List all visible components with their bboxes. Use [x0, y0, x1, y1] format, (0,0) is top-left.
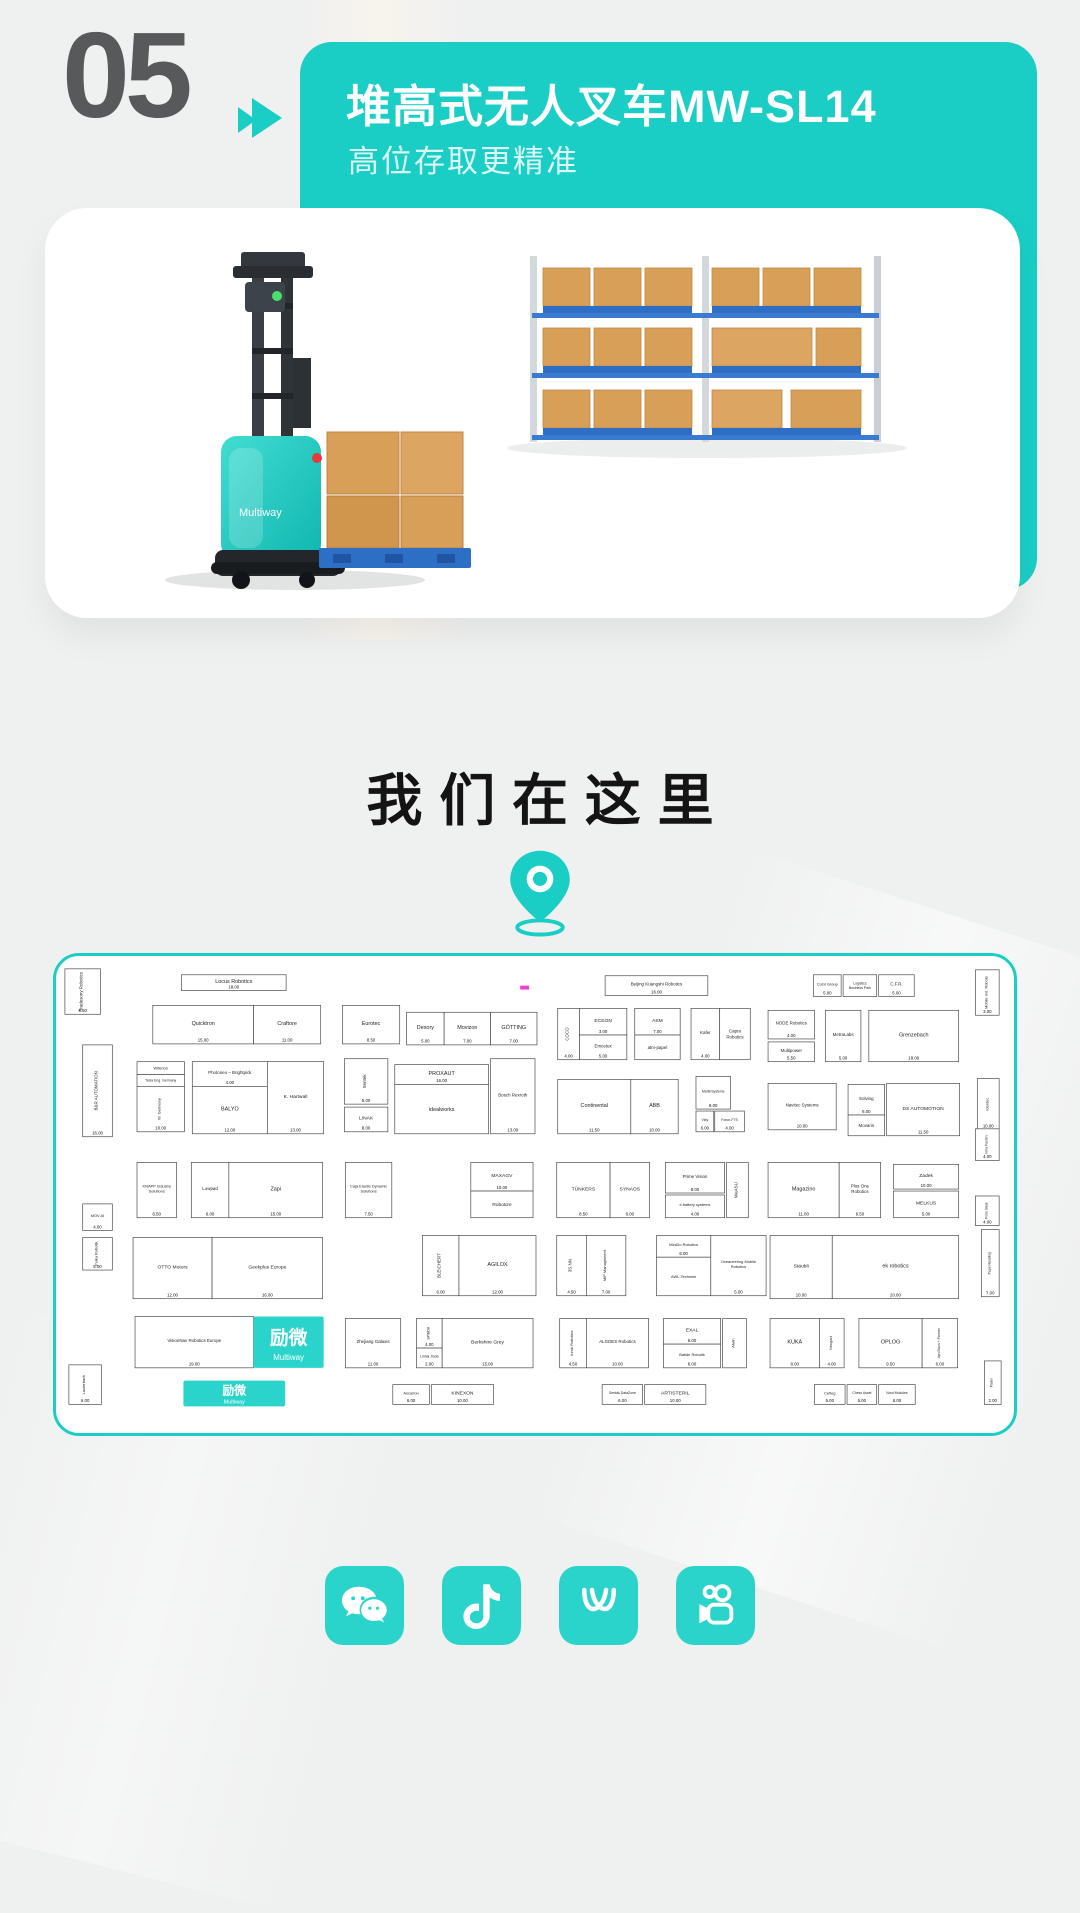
svg-text:Serdak DataZone: Serdak DataZone — [609, 1391, 636, 1395]
svg-text:KUKA: KUKA — [787, 1340, 802, 1346]
svg-text:AWL-Techniek: AWL-Techniek — [671, 1274, 696, 1279]
svg-text:Zhejiang Galaxis: Zhejiang Galaxis — [357, 1339, 391, 1344]
svg-text:11.50: 11.50 — [589, 1128, 600, 1133]
booth: Navitec Systems10.00 — [768, 1083, 836, 1129]
svg-text:Zapi: Zapi — [270, 1186, 281, 1192]
svg-text:Robotics: Robotics — [726, 1034, 744, 1039]
svg-text:Lowpad: Lowpad — [202, 1186, 218, 1191]
svg-text:7.00: 7.00 — [463, 1039, 472, 1044]
svg-text:Intra Fasten: Intra Fasten — [984, 1135, 988, 1153]
svg-text:Continental: Continental — [581, 1103, 608, 1109]
svg-text:5.00: 5.00 — [892, 990, 901, 995]
svg-text:MiniDo Robotics: MiniDo Robotics — [669, 1242, 698, 1247]
product-illustration: Multiway — [45, 208, 1020, 618]
svg-text:Solving: Solving — [859, 1096, 874, 1101]
svg-text:6.00: 6.00 — [688, 1362, 697, 1367]
svg-text:励微: 励微 — [270, 1326, 308, 1348]
booth: Nord Modules6.00 — [879, 1385, 916, 1405]
svg-text:MELKUS: MELKUS — [916, 1201, 937, 1207]
svg-text:5.00: 5.00 — [93, 1264, 102, 1269]
booth: atm-papel — [635, 1035, 680, 1060]
svg-text:K. Hartwall: K. Hartwall — [284, 1094, 308, 1100]
svg-text:18.00: 18.00 — [228, 984, 239, 989]
svg-text:Geekplus Europe: Geekplus Europe — [248, 1264, 286, 1270]
booth: Photoneo – Brightpick4.00 — [192, 1062, 267, 1087]
booth: MIP Management7.00 — [586, 1235, 626, 1295]
svg-text:VisionNav Robotics Europe: VisionNav Robotics Europe — [167, 1338, 221, 1343]
booth: ek robotics20.00 — [832, 1235, 958, 1298]
booth: CoGi Group5.00 — [813, 975, 841, 997]
svg-text:5.00: 5.00 — [362, 1098, 371, 1103]
svg-text:Grenzebach: Grenzebach — [899, 1032, 929, 1038]
booth: Intra Fasten4.00 — [975, 1129, 999, 1161]
booth: GÖTTING7.00 — [491, 1012, 537, 1045]
svg-text:4.00: 4.00 — [725, 1126, 734, 1131]
svg-text:8.00: 8.00 — [691, 1187, 700, 1192]
booth: DS AUTOMOTION11.50 — [887, 1083, 960, 1135]
svg-text:C.F.R.: C.F.R. — [890, 982, 902, 987]
svg-text:Solutions: Solutions — [360, 1189, 376, 1194]
svg-text:10.00: 10.00 — [649, 1128, 660, 1133]
booth: ECEON3.00 — [579, 1008, 626, 1035]
booth: Identec10.00 — [977, 1078, 999, 1129]
svg-text:Tradesony Robotics: Tradesony Robotics — [79, 971, 84, 1011]
svg-text:Logistics: Logistics — [853, 982, 867, 986]
svg-text:Ascarion: Ascarion — [403, 1390, 418, 1395]
booth: Grenzebach18.00 — [869, 1010, 959, 1061]
svg-text:Capra: Capra — [729, 1029, 742, 1034]
svg-text:10.00: 10.00 — [496, 1185, 507, 1190]
svg-text:Zadek: Zadek — [919, 1173, 933, 1179]
social-icons-row — [0, 1566, 1080, 1645]
svg-text:AGILOX: AGILOX — [487, 1262, 508, 1268]
svg-text:Identec: Identec — [984, 1098, 989, 1111]
booth: Geekplus Europe16.00 — [212, 1237, 323, 1298]
svg-text:Aiwin: Aiwin — [730, 1338, 735, 1347]
booth: Robotize — [471, 1191, 533, 1218]
booth: Wiferion — [137, 1062, 184, 1075]
booth: WeASU — [727, 1162, 749, 1217]
svg-text:6.00: 6.00 — [407, 1398, 416, 1403]
svg-text:8.00: 8.00 — [362, 1126, 371, 1131]
svg-text:Multipower: Multipower — [781, 1048, 803, 1053]
svg-text:MAXAGV: MAXAGV — [491, 1173, 513, 1179]
svg-text:2.00: 2.00 — [425, 1362, 434, 1367]
svg-text:4.50: 4.50 — [569, 1362, 578, 1367]
svg-text:Multiway: Multiway — [273, 1353, 304, 1362]
svg-text:Prime Vision: Prime Vision — [683, 1174, 708, 1179]
wechat-channels-icon[interactable] — [559, 1566, 638, 1645]
svg-text:Frote Ideal: Frote Ideal — [984, 1202, 988, 1219]
svg-text:COCO: COCO — [565, 1027, 570, 1041]
svg-text:ek robotics: ek robotics — [882, 1264, 909, 1270]
svg-text:idealworks: idealworks — [429, 1107, 455, 1113]
booth: Plus OneRobotics6.50 — [839, 1162, 880, 1217]
svg-text:4.00: 4.00 — [787, 1033, 796, 1038]
svg-text:Quicktron: Quicktron — [192, 1021, 215, 1027]
svg-text:NODE Robotics: NODE Robotics — [776, 1021, 808, 1026]
svg-text:10.00: 10.00 — [921, 1183, 932, 1188]
booth: Multipower5.50 — [768, 1042, 814, 1062]
booth: Magazino11.00 — [768, 1162, 839, 1217]
booth: C.F.R.5.00 — [879, 975, 915, 997]
svg-text:PROXAUT: PROXAUT — [429, 1071, 456, 1077]
booth: Dexory5.00 — [407, 1012, 445, 1045]
svg-text:Craftore: Craftore — [277, 1021, 297, 1027]
svg-text:Tesla Eng. Germany: Tesla Eng. Germany — [145, 1079, 176, 1083]
svg-text:Pader: Pader — [990, 1377, 994, 1387]
booth: Mobile Ind. Robots3.00 — [975, 970, 999, 1015]
svg-text:atm-papel: atm-papel — [648, 1045, 668, 1050]
booth: Forun-FTS4.00 — [715, 1111, 745, 1132]
svg-text:Emcetex: Emcetex — [595, 1043, 613, 1048]
booth: Craftore11.00 — [254, 1005, 321, 1044]
svg-text:4.00: 4.00 — [93, 1224, 102, 1229]
svg-text:4.00: 4.00 — [983, 1154, 992, 1159]
booth: Caja Elastic DynamicSolutions7.50 — [345, 1162, 391, 1217]
wechat-icon[interactable] — [325, 1566, 404, 1645]
svg-text:5.00: 5.00 — [839, 1055, 848, 1060]
svg-text:B&R AUTOMATION: B&R AUTOMATION — [94, 1071, 99, 1110]
booth: Kafer4.00 — [691, 1008, 720, 1059]
booth: LogisticsBusiness Park — [843, 975, 877, 997]
booth: ARTISTERIL10.00 — [645, 1385, 706, 1405]
svg-text:Pape Handling: Pape Handling — [987, 1252, 991, 1275]
booth: ABB10.00 — [631, 1079, 678, 1133]
booth: Batide Robotik6.00 — [663, 1344, 720, 1368]
svg-text:12.00: 12.00 — [167, 1293, 178, 1298]
exhibition-floorplan-map: Tradesony Robotics8.50Locus Robotics18.0… — [53, 953, 1017, 1436]
svg-text:6.00: 6.00 — [936, 1362, 945, 1367]
svg-text:6.50: 6.50 — [153, 1212, 162, 1217]
svg-text:Batide Robotik: Batide Robotik — [679, 1352, 705, 1357]
svg-text:Vidy: Vidy — [702, 1118, 709, 1122]
booth: 3S NN4.50 — [557, 1235, 587, 1295]
svg-text:6.00: 6.00 — [618, 1398, 627, 1403]
booth: OTTO Motors12.00 — [133, 1237, 212, 1298]
booth: VisionNav Robotics Europe19.00 — [135, 1316, 254, 1367]
svg-text:15.00: 15.00 — [270, 1212, 281, 1217]
svg-text:TÜNKERS: TÜNKERS — [572, 1185, 596, 1192]
booth: COCO4.00 — [558, 1008, 580, 1059]
booth: MOV AI4.00 — [83, 1204, 113, 1231]
booth: Zhejiang Galaxis11.00 — [345, 1318, 400, 1367]
svg-text:励微: 励微 — [222, 1383, 246, 1397]
svg-text:CoGi Group: CoGi Group — [817, 982, 839, 987]
booth: Oceaneering MobileRobotics5.00 — [711, 1235, 766, 1295]
svg-text:16.00: 16.00 — [262, 1293, 273, 1298]
svg-text:7.50: 7.50 — [364, 1212, 373, 1217]
svg-text:15.00: 15.00 — [482, 1362, 493, 1367]
svg-text:ARTISTERIL: ARTISTERIL — [661, 1391, 690, 1397]
svg-text:Mobile Ind. Robots: Mobile Ind. Robots — [983, 976, 988, 1009]
svg-text:4.00: 4.00 — [828, 1362, 837, 1367]
svg-text:6.00: 6.00 — [81, 1398, 90, 1403]
booth: ALGDES Robotics10.00 — [586, 1318, 648, 1367]
svg-text:4.00: 4.00 — [983, 1219, 992, 1224]
svg-text:Photoneo – Brightpick: Photoneo – Brightpick — [208, 1070, 252, 1075]
multiway-logo-booth: 励微Multiway — [254, 1316, 324, 1367]
svg-text:MarlinSystems: MarlinSystems — [702, 1090, 725, 1094]
svg-text:7.00: 7.00 — [653, 1029, 662, 1034]
svg-text:Wiferion: Wiferion — [153, 1065, 167, 1070]
booth: KUKA8.00 — [770, 1318, 819, 1367]
svg-text:5.00: 5.00 — [922, 1212, 931, 1217]
svg-text:16.00: 16.00 — [436, 1078, 447, 1083]
booth: Emcetex5.00 — [579, 1035, 626, 1060]
svg-text:8.50: 8.50 — [579, 1212, 588, 1217]
svg-text:6.00: 6.00 — [626, 1212, 635, 1217]
kuaishou-icon[interactable] — [676, 1566, 755, 1645]
multiway-logo-booth: 励微Multiway — [183, 1381, 285, 1407]
svg-text:Movizon: Movizon — [457, 1025, 477, 1031]
svg-text:e.battery systems: e.battery systems — [680, 1202, 711, 1207]
svg-text:7.00: 7.00 — [986, 1291, 995, 1296]
svg-text:Beijing Kuangshi Robotics: Beijing Kuangshi Robotics — [631, 982, 683, 987]
booth: KINEXON10.00 — [431, 1385, 493, 1405]
booth: Movizon7.00 — [444, 1012, 490, 1045]
booth: Prime Vision8.00 — [665, 1162, 724, 1193]
svg-text:13.00: 13.00 — [507, 1128, 518, 1133]
svg-text:19.00: 19.00 — [189, 1362, 200, 1367]
svg-text:11.50: 11.50 — [918, 1130, 929, 1135]
svg-text:W. Germany: W. Germany — [157, 1098, 162, 1120]
section-heading: 我们在这里 — [0, 756, 1080, 837]
svg-text:6.00: 6.00 — [679, 1251, 688, 1256]
booth: Beijing Kuangshi Robotics16.00 — [605, 976, 708, 996]
booth: MAXAGV10.00 — [471, 1162, 533, 1191]
location-pin-icon — [497, 846, 583, 940]
svg-text:4.00: 4.00 — [425, 1342, 434, 1347]
product-title: 堆高式无人叉车MW-SL14 — [346, 70, 877, 135]
booth: MarlinSystems8.00 — [696, 1076, 731, 1109]
svg-text:Robotics: Robotics — [851, 1189, 869, 1194]
booth: K. Hartwall13.00 — [267, 1062, 323, 1134]
booth: SPINDA4.00 — [416, 1318, 442, 1348]
svg-text:10.00: 10.00 — [155, 1126, 166, 1131]
svg-text:Multiway: Multiway — [224, 1399, 245, 1405]
svg-text:10.00: 10.00 — [797, 1124, 808, 1129]
svg-text:11.00: 11.00 — [282, 1038, 293, 1043]
svg-text:4.50: 4.50 — [567, 1290, 576, 1295]
svg-text:LINAK: LINAK — [359, 1116, 374, 1122]
svg-text:4.00: 4.00 — [701, 1054, 710, 1059]
booth: Quicktron15.00 — [153, 1005, 254, 1044]
booth: Lowpad6.00 — [191, 1162, 229, 1217]
booth: Tesla Eng. Germany — [137, 1075, 184, 1087]
booth: Movaris — [848, 1115, 885, 1136]
booth: Chess Asset5.00 — [847, 1385, 877, 1405]
svg-text:4.00: 4.00 — [564, 1054, 573, 1059]
svg-text:5.00: 5.00 — [599, 1054, 608, 1059]
svg-text:MOV AI: MOV AI — [91, 1213, 105, 1218]
floorplan-svg: Tradesony Robotics8.50Locus Robotics18.0… — [56, 956, 1014, 1433]
booth: CapraRobotics — [720, 1008, 751, 1059]
svg-text:3S NN: 3S NN — [568, 1259, 573, 1272]
booth: SYNAOS6.00 — [610, 1162, 650, 1217]
svg-text:MIP Management: MIP Management — [602, 1249, 607, 1281]
svg-text:Dexory: Dexory — [417, 1025, 434, 1031]
booth: Linhai Jinda2.00 — [416, 1348, 442, 1368]
svg-text:4.00: 4.00 — [226, 1080, 235, 1085]
svg-text:3.00: 3.00 — [983, 1009, 992, 1014]
svg-text:7.00: 7.00 — [510, 1039, 519, 1044]
double-arrow-icon — [238, 98, 290, 140]
svg-text:Plus One: Plus One — [851, 1183, 870, 1188]
svg-text:BLEICHERT: BLEICHERT — [437, 1253, 442, 1278]
svg-text:WeASU: WeASU — [733, 1182, 738, 1198]
booth: EXAL6.00 — [663, 1318, 720, 1344]
svg-text:10.00: 10.00 — [796, 1293, 807, 1298]
svg-text:ALGDES Robotics: ALGDES Robotics — [599, 1339, 636, 1344]
svg-text:SPINDA: SPINDA — [426, 1326, 430, 1340]
svg-text:OPLOG: OPLOG — [881, 1340, 900, 1346]
svg-text:ABB: ABB — [649, 1103, 660, 1109]
booth: BLEICHERT6.00 — [422, 1235, 459, 1295]
svg-text:12.00: 12.00 — [492, 1290, 503, 1295]
booth: Continental11.50 — [558, 1079, 631, 1133]
svg-text:5.00: 5.00 — [858, 1398, 867, 1403]
booth: B&R AUTOMATION16.00 — [83, 1045, 113, 1137]
svg-text:6.00: 6.00 — [893, 1398, 902, 1403]
svg-text:8.50: 8.50 — [78, 1008, 87, 1013]
booth: Solving6.00 — [848, 1084, 885, 1115]
svg-text:5.50: 5.50 — [787, 1055, 796, 1060]
svg-text:10.00: 10.00 — [670, 1398, 681, 1403]
svg-text:5.00: 5.00 — [823, 990, 832, 995]
svg-text:7.00: 7.00 — [602, 1290, 611, 1295]
booth: W. Germany10.00 — [137, 1086, 184, 1131]
booth: BALYO12.00 — [192, 1086, 267, 1133]
svg-text:8.00: 8.00 — [709, 1103, 718, 1108]
svg-text:Magazino: Magazino — [792, 1186, 816, 1192]
booth: Frote Ideal4.00 — [975, 1196, 999, 1226]
svg-text:dpn Daun + Partner: dpn Daun + Partner — [937, 1327, 941, 1358]
booth: Zapi15.00 — [229, 1162, 323, 1217]
svg-text:OTTO Motors: OTTO Motors — [158, 1264, 189, 1270]
svg-text:16.00: 16.00 — [92, 1131, 103, 1136]
svg-text:9.50: 9.50 — [886, 1362, 895, 1367]
svg-text:MetraLabs: MetraLabs — [833, 1032, 855, 1037]
booth: AWL-Techniek — [656, 1257, 710, 1296]
svg-text:8.00: 8.00 — [791, 1362, 800, 1367]
svg-text:16.00: 16.00 — [651, 989, 662, 994]
booth: NODE Robotics4.00 — [768, 1010, 814, 1039]
svg-text:Lauterbach: Lauterbach — [81, 1375, 86, 1395]
booth: e.battery systems4.00 — [665, 1195, 724, 1218]
svg-text:6.50: 6.50 — [856, 1212, 865, 1217]
svg-text:Forun-FTS: Forun-FTS — [721, 1118, 738, 1122]
booth: KNAPP IndustrySolutions6.50 — [137, 1162, 177, 1217]
booth: Pader2.00 — [984, 1361, 1001, 1404]
booth: dpn Daun + Partner6.00 — [922, 1318, 958, 1367]
booth: Bosch Rexroth13.00 — [491, 1059, 535, 1134]
booth: Inrok Robotics4.50 — [560, 1318, 587, 1367]
svg-text:BALYO: BALYO — [221, 1106, 239, 1112]
booth: Serdak DataZone6.00 — [602, 1385, 642, 1405]
svg-text:Linhai Jinda: Linhai Jinda — [420, 1355, 438, 1359]
booth: PROXAUT16.00 — [395, 1065, 489, 1085]
product-subtitle: 高位存取更精准 — [348, 136, 579, 181]
svg-text:20.00: 20.00 — [890, 1293, 901, 1298]
svg-text:15.00: 15.00 — [198, 1038, 209, 1043]
booth: Vidy6.00 — [696, 1111, 714, 1132]
svg-text:GÖTTING: GÖTTING — [501, 1024, 526, 1031]
svg-text:ECEON: ECEON — [594, 1018, 612, 1024]
pallet-rack — [530, 256, 881, 442]
booth: Locus Robotics18.00 — [181, 975, 286, 991]
svg-text:11.00: 11.00 — [798, 1212, 809, 1217]
svg-text:3.00: 3.00 — [599, 1029, 608, 1034]
svg-text:Business Park: Business Park — [849, 986, 871, 990]
svg-text:6.00: 6.00 — [436, 1290, 445, 1295]
booth: Aiwin — [723, 1318, 747, 1367]
douyin-icon[interactable] — [442, 1566, 521, 1645]
svg-text:Pulka Robotik: Pulka Robotik — [94, 1242, 99, 1266]
booth: Sentek5.00 — [344, 1059, 387, 1104]
booth: Lauterbach6.00 — [69, 1365, 102, 1405]
svg-text:12.00: 12.00 — [224, 1128, 235, 1133]
section-number: 05 — [62, 14, 188, 136]
svg-text:18.00: 18.00 — [908, 1055, 919, 1060]
svg-text:ASM: ASM — [652, 1018, 663, 1024]
svg-text:DS AUTOMOTION: DS AUTOMOTION — [903, 1106, 945, 1112]
svg-text:Nord Modules: Nord Modules — [886, 1391, 908, 1395]
pink-highlight-mark — [520, 986, 529, 990]
svg-text:10.00: 10.00 — [983, 1124, 994, 1129]
svg-text:Movaris: Movaris — [859, 1123, 875, 1128]
svg-text:SYNAOS: SYNAOS — [620, 1186, 641, 1192]
svg-text:Neugart: Neugart — [828, 1335, 833, 1350]
svg-text:5.00: 5.00 — [734, 1290, 743, 1295]
svg-text:Inrok Robotics: Inrok Robotics — [569, 1331, 574, 1356]
svg-text:8.50: 8.50 — [367, 1038, 376, 1043]
svg-text:Solutions: Solutions — [149, 1189, 165, 1194]
svg-text:11.00: 11.00 — [368, 1362, 379, 1367]
svg-text:6.00: 6.00 — [688, 1338, 697, 1343]
svg-text:Cefleg: Cefleg — [824, 1390, 835, 1395]
booth: MetraLabs5.00 — [825, 1010, 861, 1061]
booth: Berkshire Grey15.00 — [442, 1318, 533, 1367]
svg-text:Chess Asset: Chess Asset — [852, 1391, 871, 1395]
svg-text:EXAL: EXAL — [686, 1328, 699, 1334]
svg-text:6.00: 6.00 — [701, 1126, 710, 1131]
svg-text:Robotics: Robotics — [731, 1264, 746, 1269]
forklift: Multiway — [211, 252, 471, 589]
booth: AGILOX12.00 — [459, 1235, 536, 1295]
booth: MiniDo Robotics6.00 — [656, 1235, 710, 1257]
booth: TÜNKERS8.50 — [557, 1162, 610, 1217]
svg-text:Eurotec: Eurotec — [362, 1021, 381, 1027]
booth: LINAK8.00 — [344, 1107, 387, 1132]
svg-text:Stäubli: Stäubli — [794, 1263, 809, 1269]
svg-text:Robotize: Robotize — [492, 1202, 512, 1208]
booth: Pulka Robotik5.00 — [83, 1237, 113, 1270]
svg-text:Berkshire Grey: Berkshire Grey — [471, 1339, 504, 1345]
booth: Eurotec8.50 — [342, 1005, 399, 1044]
booth: Pape Handling7.00 — [981, 1230, 999, 1297]
booth: Neugart4.00 — [819, 1318, 844, 1367]
booth: ASM7.00 — [635, 1008, 680, 1035]
svg-text:5.00: 5.00 — [826, 1398, 835, 1403]
booth: OPLOG9.50 — [859, 1318, 922, 1367]
svg-text:6.00: 6.00 — [206, 1212, 215, 1217]
svg-text:10.00: 10.00 — [612, 1362, 623, 1367]
svg-text:KINEXON: KINEXON — [451, 1391, 474, 1397]
product-image-card: Multiway — [45, 208, 1020, 618]
svg-text:Bosch Rexroth: Bosch Rexroth — [498, 1092, 528, 1097]
booth: Zadek10.00 — [893, 1164, 958, 1189]
